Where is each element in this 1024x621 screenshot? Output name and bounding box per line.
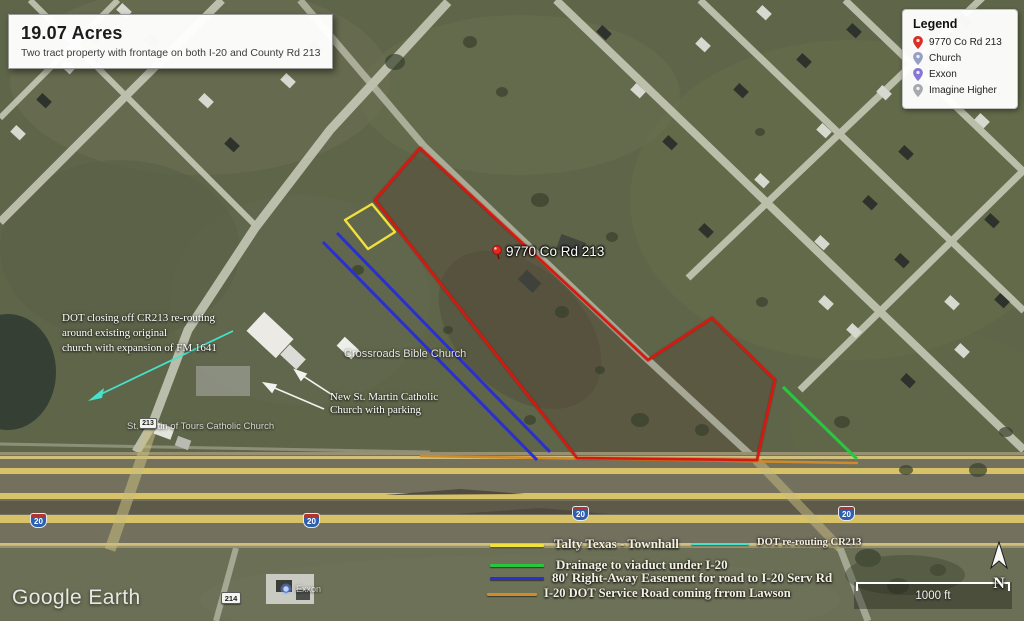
dot-closing-note: DOT closing off CR213 re-routing around … xyxy=(62,311,217,356)
acreage-title: 19.07 Acres xyxy=(21,23,320,43)
legend-box: Legend 9770 Co Rd 213 Church Exxon Imagi… xyxy=(902,9,1018,109)
interstate-shield: 20 xyxy=(303,513,320,528)
legend-item: 9770 Co Rd 213 xyxy=(913,36,1009,49)
legend-item: Imagine Higher xyxy=(913,84,1009,97)
exxon-label: Exxon xyxy=(296,584,321,594)
exxon-marker xyxy=(281,584,292,595)
property-pin-label: 9770 Co Rd 213 xyxy=(506,244,604,259)
legend-line-yellow xyxy=(490,544,544,547)
interstate-shield: 20 xyxy=(572,506,589,521)
road-shield-214: 214 xyxy=(221,592,241,604)
crossroads-church-label: Crossroads Bible Church xyxy=(344,348,466,360)
legend-line-blue xyxy=(490,577,544,580)
map-pin-icon xyxy=(913,52,923,65)
north-arrow: N xyxy=(984,541,1014,593)
acreage-subtitle: Two tract property with frontage on both… xyxy=(21,47,320,59)
google-earth-map[interactable]: 9770 Co Rd 213 Crossroads Bible Church S… xyxy=(0,0,1024,621)
north-label: N xyxy=(984,575,1014,593)
interstate-shield: 20 xyxy=(838,506,855,521)
legend-line-green xyxy=(490,564,544,567)
new-church-note: New St. Martin Catholic Church with park… xyxy=(330,391,438,417)
legend-label-reroute: DOT re-routing CR213 xyxy=(757,537,861,548)
legend-item: Church xyxy=(913,52,1009,65)
legend-label-easement: 80' Right-Away Easement for road to I-20… xyxy=(552,570,832,586)
map-pin-icon xyxy=(913,84,923,97)
road-shield-213: 213 xyxy=(139,418,157,429)
legend-label-service-road: I-20 DOT Service Road coming frrom Lawso… xyxy=(544,586,791,601)
title-box: 19.07 Acres Two tract property with fron… xyxy=(8,14,333,69)
legend-label-talty: Talty Texas - Townhall xyxy=(554,536,679,552)
north-arrow-icon xyxy=(984,541,1014,573)
legend-line-cyan xyxy=(691,543,749,545)
map-pin-icon xyxy=(913,68,923,81)
map-pin-icon xyxy=(913,36,923,49)
google-earth-watermark: Google Earth xyxy=(12,586,141,610)
legend-title: Legend xyxy=(913,17,1009,31)
legend-line-orange xyxy=(487,593,537,596)
legend-item: Exxon xyxy=(913,68,1009,81)
interstate-shield: 20 xyxy=(30,513,47,528)
